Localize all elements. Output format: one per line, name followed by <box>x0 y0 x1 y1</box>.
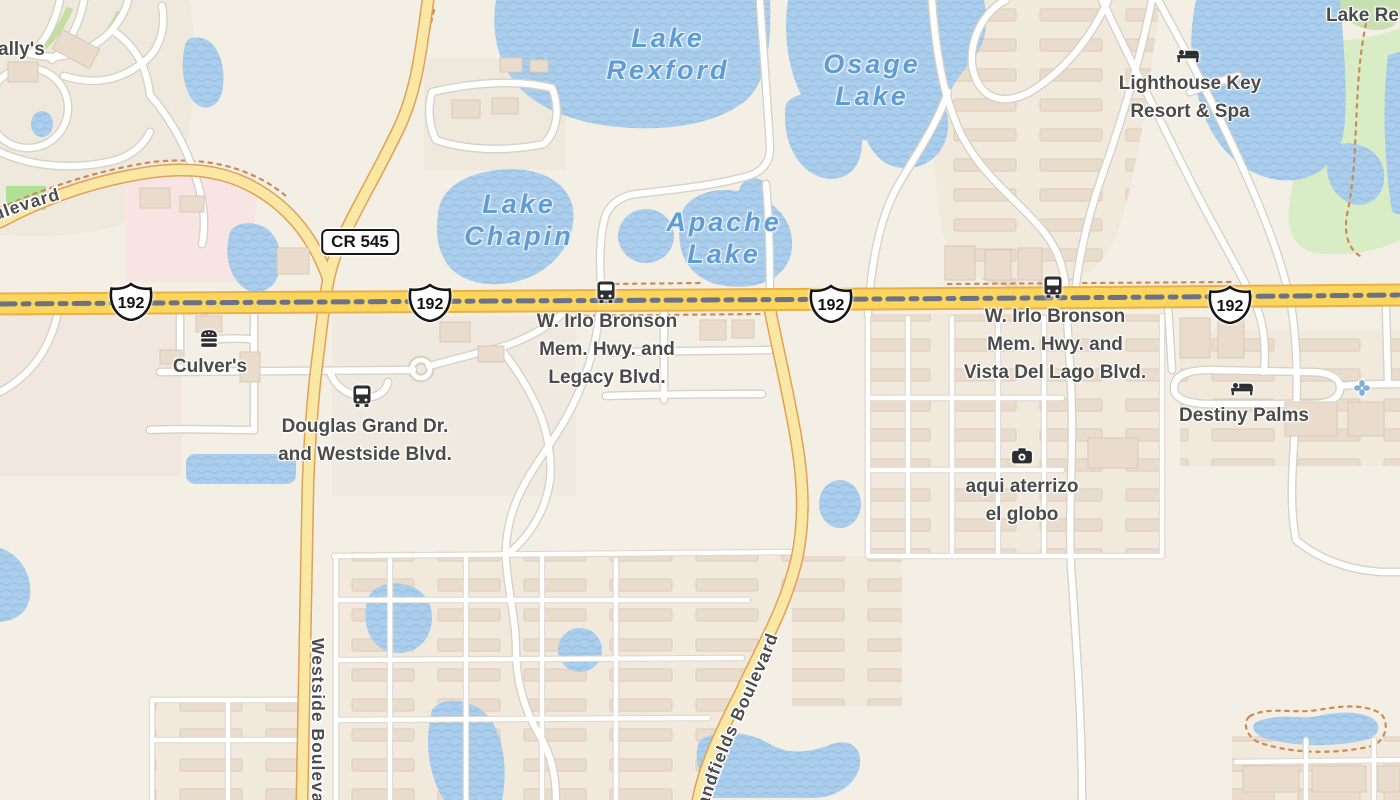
road-label-westside: Westside Boulevard <box>308 638 328 800</box>
svg-text:192: 192 <box>1217 298 1244 315</box>
intersection-label-irlo-vista: W. Irlo Bronson Mem. Hwy. and Vista Del … <box>964 303 1146 387</box>
svg-text:192: 192 <box>818 297 845 314</box>
cr-545-shield: CR 545 <box>321 229 399 255</box>
lake-label-rexford: LakeRexford <box>606 22 729 86</box>
lake-label-osage: OsageLake <box>823 48 921 112</box>
lake-label-apache: ApacheLake <box>666 206 782 270</box>
poi-label: ally's <box>0 36 45 64</box>
bed-icon <box>1229 377 1255 397</box>
poi-label: Lighthouse KeyResort & Spa <box>1119 70 1262 126</box>
bus-stop-icon[interactable] <box>351 384 374 409</box>
poi-label-lake-re[interactable]: Lake Re <box>1326 2 1399 30</box>
poi-label: Culver's <box>173 353 247 381</box>
attraction-fan-icon[interactable] <box>1354 380 1371 397</box>
bus-stop-icon[interactable] <box>1042 275 1065 300</box>
bus-stop-icon[interactable] <box>595 280 618 305</box>
intersection-label-douglas-westside: Douglas Grand Dr. and Westside Blvd. <box>278 413 452 469</box>
burger-icon <box>197 327 222 350</box>
intersection-label-irlo-legacy: W. Irlo Bronson Mem. Hwy. and Legacy Blv… <box>537 308 677 392</box>
map-canvas[interactable]: Westside Boulevard Boulevard Sandfields … <box>0 0 1400 800</box>
svg-text:192: 192 <box>118 295 145 312</box>
us-192-shield: 192 <box>1207 284 1253 324</box>
us-192-shield: 192 <box>407 282 453 322</box>
svg-text:192: 192 <box>417 296 444 313</box>
bed-icon <box>1175 44 1201 64</box>
camera-icon <box>1010 445 1035 466</box>
us-192-shield: 192 <box>808 283 854 323</box>
poi-label: aqui aterrizoel globo <box>966 473 1079 529</box>
poi-label: Destiny Palms <box>1179 402 1309 430</box>
us-192-shield: 192 <box>108 281 154 321</box>
lake-label-chapin: LakeChapin <box>464 188 574 252</box>
